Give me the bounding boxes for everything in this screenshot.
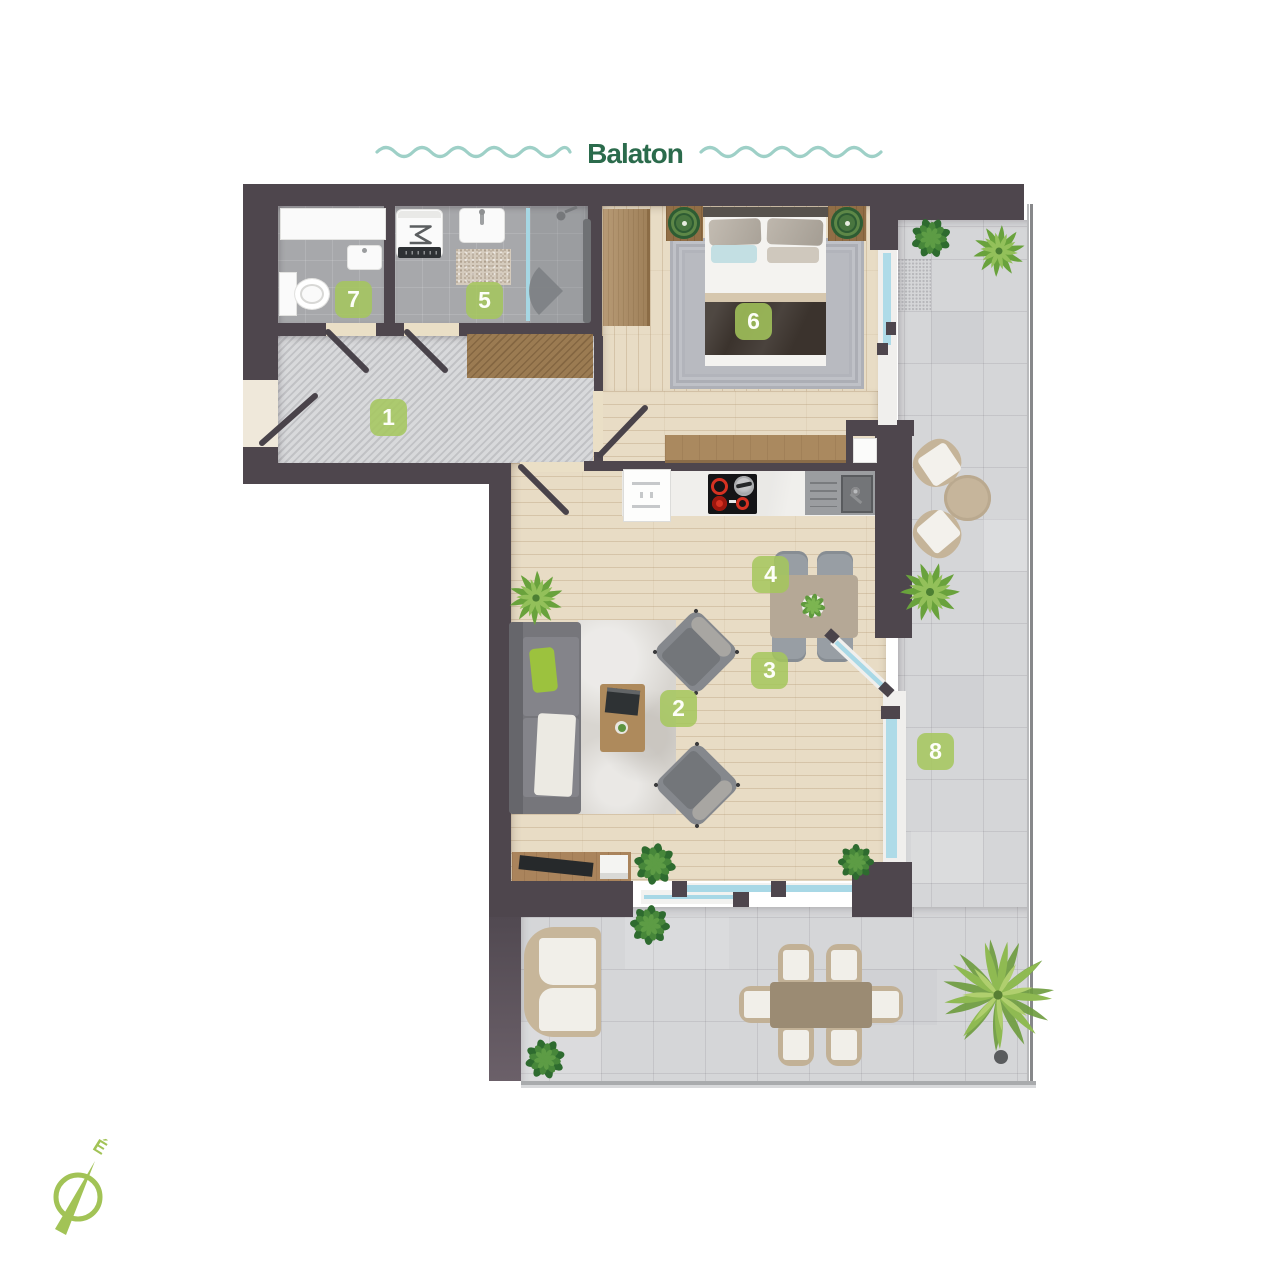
svg-text:É: É	[90, 1134, 111, 1158]
